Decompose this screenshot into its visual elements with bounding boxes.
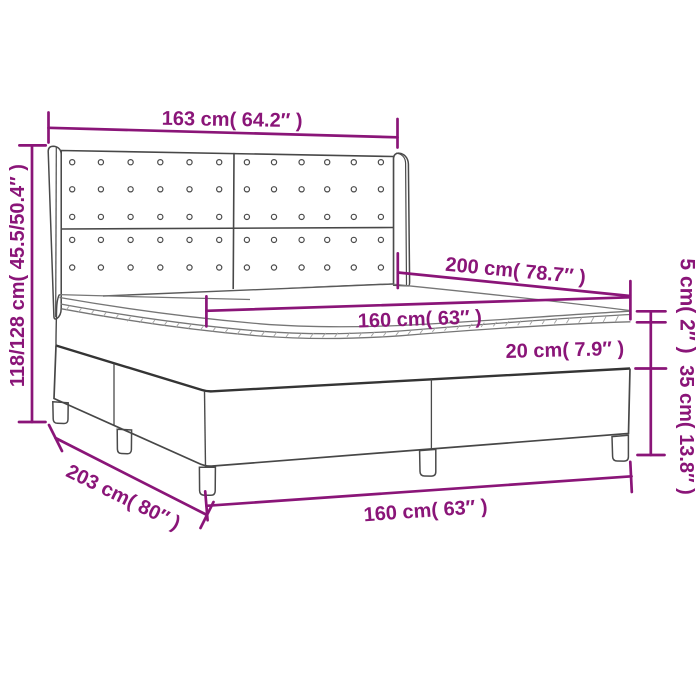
svg-text:118/128 cm( 45.5/50.4″ ): 118/128 cm( 45.5/50.4″ ) [7,164,29,387]
svg-text:5 cm( 2″ ): 5 cm( 2″ ) [676,258,699,353]
svg-text:160 cm( 63″ ): 160 cm( 63″ ) [357,306,482,332]
svg-text:20 cm( 7.9″ ): 20 cm( 7.9″ ) [505,338,624,363]
svg-text:35 cm( 13.8″ ): 35 cm( 13.8″ ) [675,365,697,495]
svg-text:163 cm( 64.2″ ): 163 cm( 64.2″ ) [162,108,303,132]
